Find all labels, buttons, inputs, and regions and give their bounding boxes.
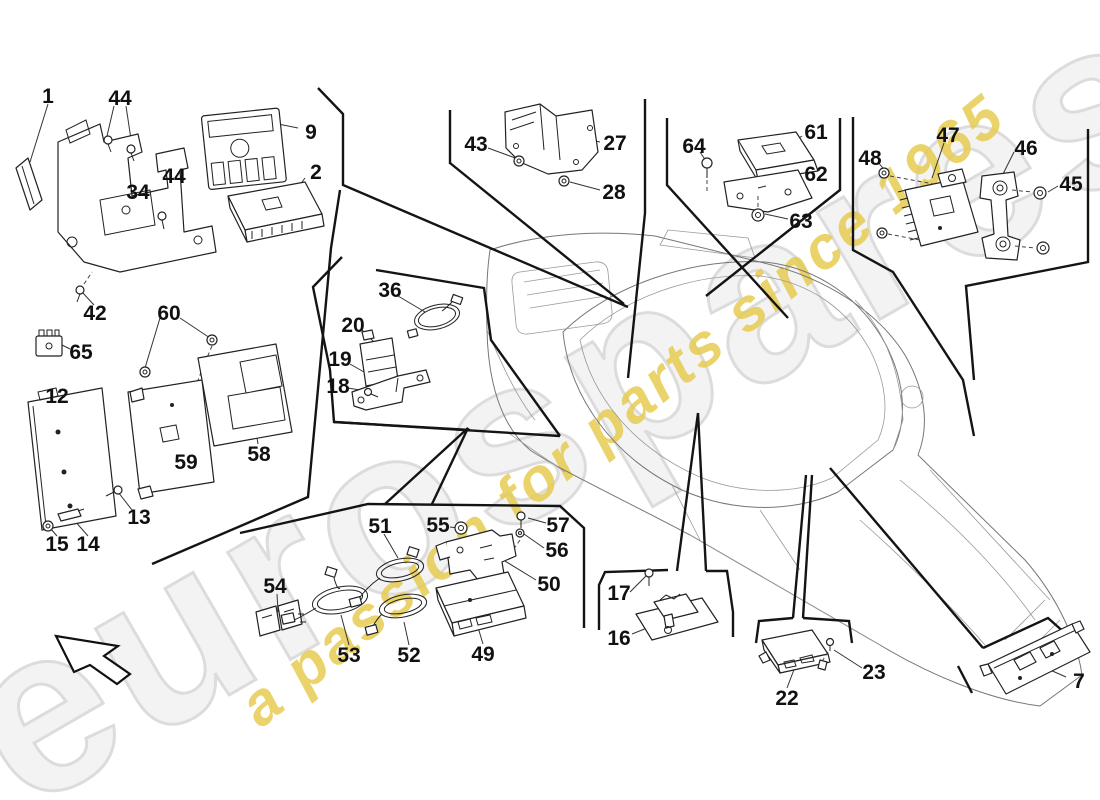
- part-label-15: 15: [45, 533, 69, 556]
- part-label-18: 18: [326, 375, 350, 398]
- part-label-64: 64: [682, 135, 706, 158]
- part-12-control-unit: [28, 388, 116, 530]
- part-label-65: 65: [69, 341, 93, 364]
- part-label-58: 58: [247, 443, 271, 466]
- part-label-46: 46: [1014, 137, 1037, 160]
- part-label-61: 61: [804, 121, 828, 144]
- part-label-22: 22: [775, 687, 798, 710]
- part-15-nut: [43, 521, 53, 531]
- part-label-42: 42: [83, 302, 106, 325]
- part-label-12: 12: [45, 385, 68, 408]
- part-58-control-unit: [198, 344, 292, 446]
- part-label-43: 43: [464, 133, 487, 156]
- part-label-49: 49: [471, 643, 494, 666]
- part-42-screw: [76, 272, 92, 302]
- part-9-control-unit: [201, 108, 286, 190]
- part-label-50: 50: [537, 573, 560, 596]
- part-label-62: 62: [804, 163, 827, 186]
- part-16-sensor-module: [636, 594, 718, 640]
- part-22-control-unit: [759, 630, 830, 673]
- part-label-2: 2: [310, 161, 322, 184]
- part-label-57: 57: [546, 514, 569, 537]
- part-55-grommet: [455, 522, 467, 534]
- part-label-16: 16: [607, 627, 630, 650]
- part-label-34: 34: [126, 181, 150, 204]
- part-17-screw: [645, 569, 653, 586]
- part-label-23: 23: [862, 661, 885, 684]
- part-label-17: 17: [607, 582, 630, 605]
- part-label-59: 59: [174, 451, 197, 474]
- part-label-27: 27: [603, 132, 626, 155]
- part-label-13: 13: [127, 506, 150, 529]
- part-label-14: 14: [76, 533, 100, 556]
- part-label-56: 56: [545, 539, 568, 562]
- part-label-52: 52: [397, 644, 420, 667]
- part-2-control-unit: [228, 182, 324, 242]
- part-label-55: 55: [426, 514, 450, 537]
- parts-diagram-page: eurospares a passion for parts since 196…: [0, 0, 1100, 800]
- exploded-parts-diagram: eurospares a passion for parts since 196…: [0, 0, 1100, 800]
- part-label-28: 28: [602, 181, 626, 204]
- part-label-44: 44: [108, 87, 132, 110]
- part-1-trim-strip: [16, 158, 42, 210]
- part-label-36: 36: [378, 279, 401, 302]
- part-label-47: 47: [936, 124, 959, 147]
- part-label-51: 51: [368, 515, 392, 538]
- part-59-control-unit: [128, 380, 214, 499]
- part-label-1: 1: [42, 85, 54, 108]
- part-label-7: 7: [1073, 670, 1085, 693]
- part-label-44b: 44: [162, 165, 186, 188]
- part-label-9: 9: [305, 121, 317, 144]
- part-label-54: 54: [263, 575, 287, 598]
- part-label-45: 45: [1059, 173, 1083, 196]
- part-label-19: 19: [328, 348, 351, 371]
- part-28-nut: [559, 176, 569, 186]
- part-label-20: 20: [341, 314, 364, 337]
- part-65-connector: [36, 330, 62, 356]
- part-label-53: 53: [337, 644, 360, 667]
- part-label-60: 60: [157, 302, 180, 325]
- part-43-nut: [514, 156, 524, 166]
- part-label-63: 63: [789, 210, 812, 233]
- part-label-48: 48: [858, 147, 882, 170]
